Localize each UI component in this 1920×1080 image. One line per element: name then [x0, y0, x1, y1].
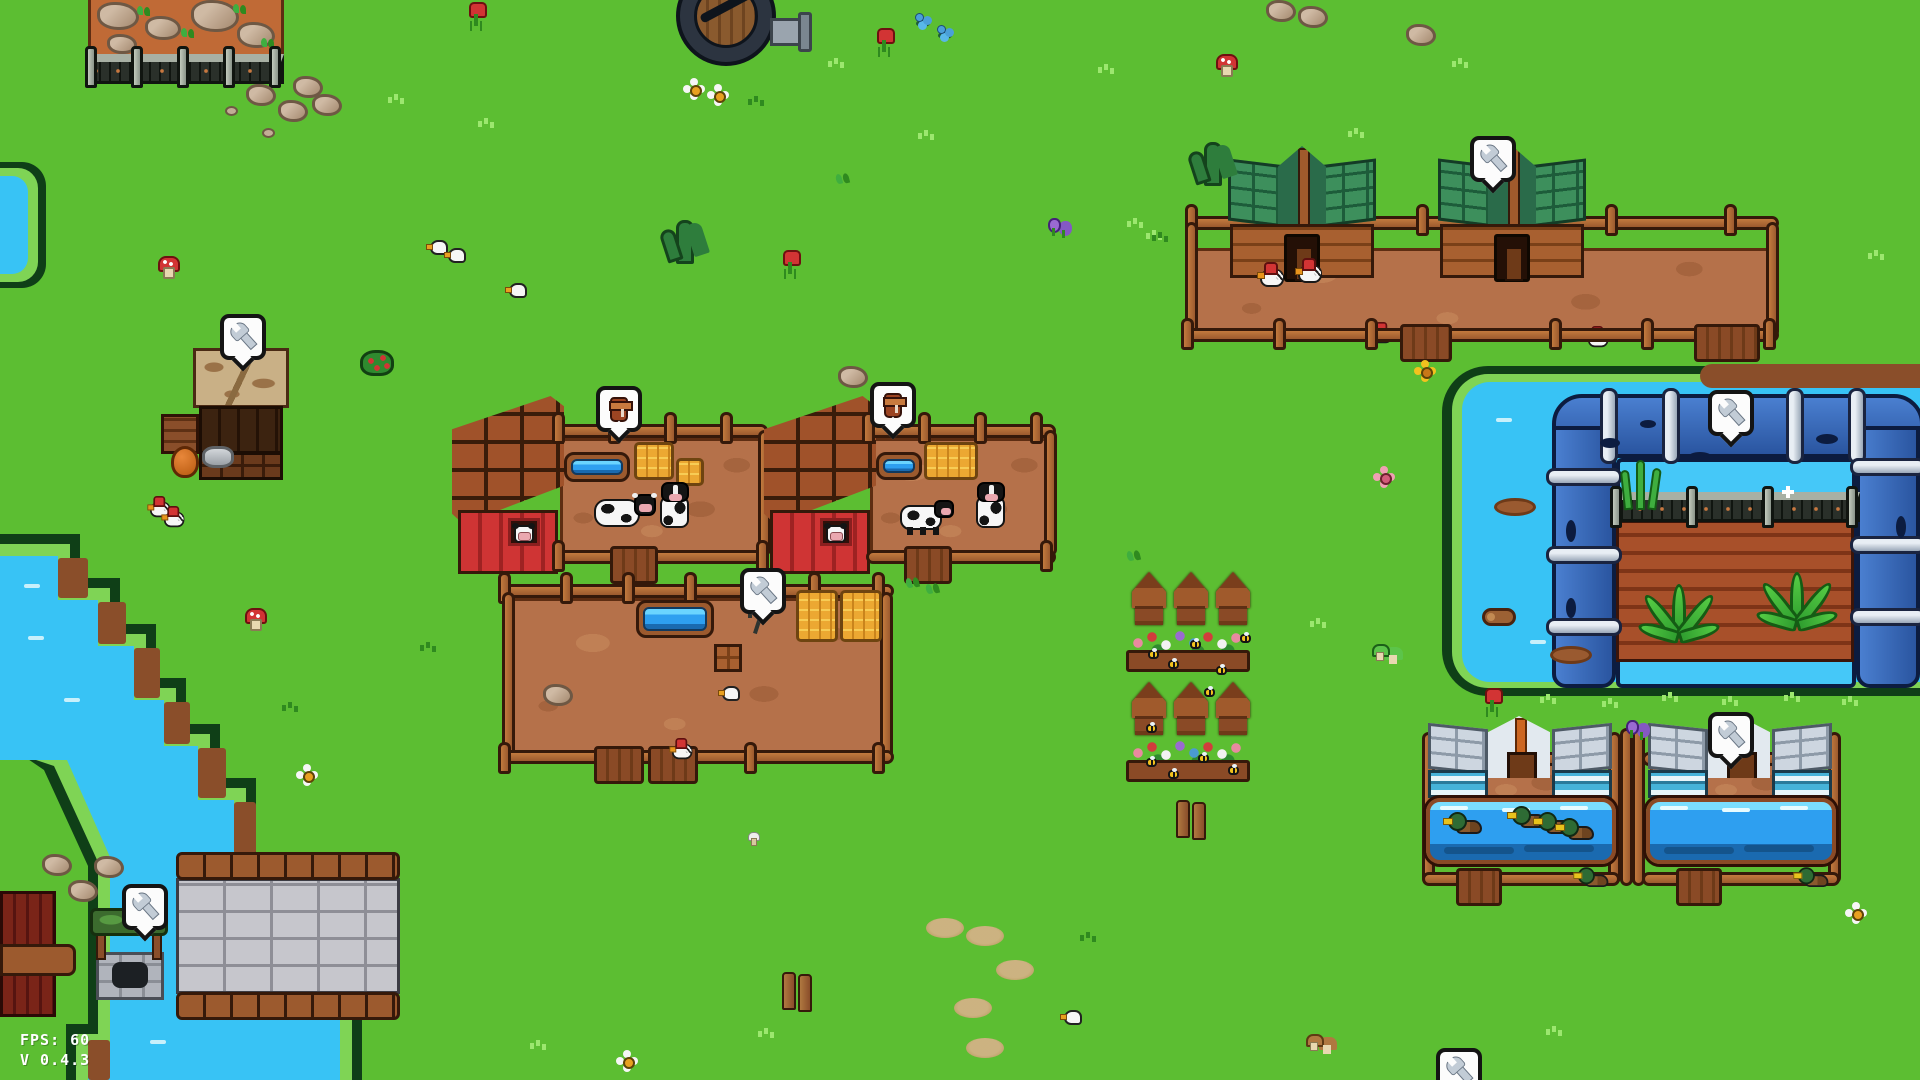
- pen-gate[interactable]: [1676, 868, 1722, 906]
- milk-can-icon: [610, 397, 628, 422]
- fence-post: [974, 412, 987, 444]
- fence-post: [1030, 412, 1043, 444]
- grass-tuft-icon: [1546, 1026, 1562, 1036]
- white-flower-icon: [684, 80, 704, 98]
- blue-flower-icon: [914, 12, 932, 28]
- fence-post: [744, 742, 757, 774]
- red-flower-icon: [876, 28, 892, 54]
- wrench-bubble[interactable]: [1708, 390, 1754, 436]
- grass-tuft-icon: [1868, 250, 1884, 260]
- stone-bridge[interactable]: [176, 878, 400, 994]
- sprout-icon: [261, 38, 267, 47]
- grass-tuft-icon: [1452, 58, 1468, 68]
- water-sparkle: [1496, 418, 1512, 422]
- bee-icon: [1204, 688, 1215, 697]
- rock-icon: [838, 366, 868, 388]
- pen-gate[interactable]: [1400, 324, 1452, 362]
- fence-post: [1763, 318, 1776, 350]
- red-mushroom-icon: [158, 256, 176, 276]
- bee-icon: [1168, 660, 1179, 669]
- fence-post: [872, 742, 885, 774]
- sprout-icon: [1127, 551, 1141, 564]
- pebble-icon: [262, 128, 275, 138]
- pipe-clamp: [1850, 536, 1920, 554]
- upgrade-wrench-icon: [1441, 1053, 1476, 1080]
- rock-icon: [94, 856, 124, 878]
- fence-post: [552, 540, 565, 572]
- cow-sprite: [900, 498, 952, 538]
- chicken-sprite: [1260, 262, 1286, 288]
- bee-icon: [1146, 724, 1157, 733]
- chicken-sprite: [1298, 258, 1324, 284]
- wrench-bubble[interactable]: [1708, 712, 1754, 758]
- cow-head-sprite: [826, 525, 846, 543]
- fence-post: [1181, 318, 1194, 350]
- rock-icon: [278, 100, 308, 122]
- wrench-bubble[interactable]: [122, 884, 168, 930]
- fence-post: [1686, 486, 1698, 528]
- rock-icon: [68, 880, 98, 902]
- wood-posts-icon: [782, 972, 810, 1010]
- hay-feeder[interactable]: [924, 442, 978, 480]
- water-sparkle: [64, 698, 80, 702]
- pipe-stain: [1816, 434, 1838, 444]
- water-sparkle: [24, 584, 40, 588]
- water-sparkle: [150, 1040, 166, 1044]
- chicken-sprite: [672, 738, 694, 760]
- grass-tuft-icon: [1602, 698, 1618, 708]
- upgrade-wrench-icon: [225, 319, 260, 354]
- grass-tuft-icon: [1540, 694, 1556, 704]
- barn-window: [820, 518, 852, 546]
- pink-flower-icon: [1374, 468, 1394, 486]
- duck-house-roof: [1552, 723, 1612, 775]
- grass-tuft-icon: [388, 94, 404, 104]
- coop-gable: [1278, 146, 1326, 232]
- pen-fence-side: [1632, 728, 1645, 886]
- duck-house-wall: [1428, 770, 1488, 798]
- grass-tuft-icon: [530, 1040, 546, 1050]
- pen-gate[interactable]: [1456, 868, 1502, 906]
- grass-tuft-icon: [1722, 696, 1738, 706]
- pebble-icon: [225, 106, 238, 116]
- white-flower-icon: [297, 766, 317, 784]
- green-mushroom-icon: [1372, 644, 1400, 662]
- pen-fence-side: [502, 592, 515, 760]
- dirt-patch-icon: [954, 998, 992, 1018]
- red-mushroom-icon: [245, 608, 263, 628]
- rock-icon: [1406, 24, 1436, 46]
- beehive[interactable]: [1132, 572, 1166, 628]
- pipe-stain: [1640, 420, 1656, 428]
- bank-dirt: [198, 748, 226, 798]
- purple-flower-icon: [1626, 718, 1648, 738]
- milk-bubble[interactable]: [870, 382, 916, 428]
- sparkle-icon: [1782, 486, 1794, 498]
- fence-post: [560, 572, 573, 604]
- bee-icon: [1148, 650, 1159, 659]
- rock-icon: [312, 94, 342, 116]
- white-mushroom-icon: [748, 832, 760, 845]
- grass-tuft-icon: [758, 1028, 774, 1038]
- bridge-rail-top: [176, 852, 400, 880]
- debug-hud: FPS: 60 V 0.4.3: [20, 1030, 90, 1070]
- water-trough[interactable]: [876, 452, 922, 480]
- upgrade-wrench-icon: [745, 573, 780, 608]
- pipe-stain: [1688, 452, 1712, 462]
- water-sparkle: [28, 636, 44, 640]
- rock-icon: [246, 84, 276, 106]
- wood-posts-icon: [1176, 800, 1204, 838]
- fence-post: [720, 412, 733, 444]
- grass-tuft-icon: [1127, 218, 1143, 228]
- pen-fence: [502, 750, 894, 764]
- wrench-bubble[interactable]: [740, 568, 786, 614]
- metal-bowl[interactable]: [202, 446, 234, 468]
- bird-icon: [444, 248, 462, 261]
- milk-can-icon: [884, 393, 902, 418]
- duck-sprite: [1560, 818, 1596, 842]
- grass-tuft-icon: [1662, 692, 1678, 702]
- pen-fence: [556, 424, 768, 438]
- duck-sprite: [1448, 812, 1484, 836]
- crop-plant: [1752, 536, 1842, 632]
- kelp-icon: [1620, 456, 1664, 510]
- upgrade-wrench-icon: [127, 889, 162, 924]
- fence-post: [1846, 486, 1858, 528]
- bird-icon: [1060, 1010, 1078, 1023]
- bank-dirt: [164, 702, 190, 744]
- bee-icon: [1190, 640, 1201, 649]
- fence-post: [1416, 204, 1429, 236]
- mud-patch-icon: [1494, 498, 1536, 516]
- barn-window: [508, 518, 540, 546]
- pipe-stain: [1600, 438, 1620, 448]
- pipe-clamp: [1786, 388, 1804, 464]
- pipe-stain: [1566, 520, 1576, 542]
- white-flower-icon: [1846, 904, 1866, 922]
- grass-tuft-icon: [1310, 618, 1326, 628]
- pipe-clamp: [1848, 388, 1866, 464]
- fence-post: [1724, 204, 1737, 236]
- bee-icon: [1198, 754, 1209, 763]
- red-flower-icon: [782, 250, 798, 276]
- duck-house-wall: [1772, 770, 1832, 798]
- cow-barn[interactable]: [764, 396, 876, 578]
- bank-dirt: [98, 602, 126, 644]
- pipe-stain: [1896, 516, 1906, 538]
- sprout-icon: [137, 6, 143, 15]
- composter-pipe-cap: [798, 12, 812, 52]
- cow-barn[interactable]: [452, 396, 564, 578]
- mud-patch-icon: [1550, 646, 1592, 664]
- water-sparkle: [1530, 640, 1546, 644]
- dirt-patch-icon: [926, 918, 964, 938]
- wrench-bubble[interactable]: [1470, 136, 1516, 182]
- grass-tuft-icon: [1784, 692, 1800, 702]
- pipe-clamp: [1850, 458, 1920, 476]
- sprout-icon: [906, 578, 920, 591]
- pen-fence: [556, 550, 768, 564]
- clay-pot[interactable]: [171, 446, 199, 478]
- rock-icon: [1266, 0, 1296, 22]
- grass-tuft-dark-icon: [1152, 232, 1168, 242]
- white-flower-icon: [617, 1052, 637, 1070]
- upgrade-wrench-icon: [1713, 395, 1748, 430]
- bird-icon: [505, 283, 523, 296]
- duck-sprite: [1798, 867, 1830, 889]
- grass-tuft-icon: [828, 58, 844, 68]
- pipe-clamp: [1546, 468, 1622, 486]
- pipe-clamp: [1546, 618, 1622, 636]
- tall-grass-icon: [1192, 142, 1228, 182]
- coop-roof-panel: [1318, 158, 1376, 227]
- fence-post: [1040, 540, 1053, 572]
- well-post: [96, 932, 106, 960]
- beehive[interactable]: [1216, 682, 1250, 738]
- rock-icon: [543, 684, 573, 706]
- duck-house-roof: [1772, 723, 1832, 775]
- fence-post: [1605, 204, 1618, 236]
- coop-roof-panel: [1228, 158, 1286, 227]
- grass-tuft-icon: [1842, 696, 1858, 706]
- duck-house-roof: [1648, 723, 1708, 775]
- fence-post: [1762, 486, 1774, 528]
- sprout-icon: [181, 28, 187, 37]
- log-icon: [1482, 608, 1516, 626]
- fence-post: [223, 46, 235, 88]
- grass-tuft-dark-icon: [1080, 932, 1096, 942]
- hay-bale: [840, 590, 882, 642]
- blue-flower-icon: [936, 24, 954, 40]
- barn-roof: [764, 396, 876, 524]
- grass-tuft-icon: [1348, 128, 1364, 138]
- wrench-bubble[interactable]: [220, 314, 266, 360]
- upgrade-wrench-icon: [1713, 717, 1748, 752]
- pen-gate[interactable]: [594, 746, 644, 784]
- berry-bush-icon: [360, 350, 394, 376]
- quarry-rock: [237, 22, 275, 48]
- cow-sprite: [594, 494, 656, 530]
- fence-post: [269, 46, 281, 88]
- fence-post: [552, 412, 565, 444]
- fence-post: [1641, 318, 1654, 350]
- hay-bale: [796, 590, 838, 642]
- beehive[interactable]: [1174, 572, 1208, 628]
- quarry-rock: [145, 16, 181, 40]
- bird-icon: [426, 240, 444, 253]
- pipe-clamp: [1600, 388, 1618, 464]
- purple-flower-icon: [1048, 216, 1070, 236]
- hay-feeder[interactable]: [634, 442, 674, 480]
- game-viewport: FPS: 60 V 0.4.3: [0, 0, 1920, 1080]
- bird-icon: [718, 686, 736, 699]
- pond-dirt-edge: [1700, 364, 1920, 388]
- coop-door: [1494, 234, 1530, 282]
- fence-post: [664, 412, 677, 444]
- red-flower-icon: [468, 2, 484, 28]
- crop-plant: [1634, 548, 1724, 644]
- duck-house-wall: [1648, 770, 1708, 798]
- red-flower-icon: [1484, 688, 1500, 714]
- white-flower-icon: [708, 86, 728, 104]
- bee-icon: [1240, 634, 1251, 643]
- milk-bubble[interactable]: [596, 386, 642, 432]
- pipe-stain: [1566, 598, 1576, 618]
- dirt-patch-icon: [966, 1038, 1004, 1058]
- bee-icon: [1146, 758, 1157, 767]
- fence-post: [1549, 318, 1562, 350]
- tall-grass-icon: [664, 220, 700, 260]
- rock-icon: [1298, 6, 1328, 28]
- grass-tuft-icon: [1098, 64, 1114, 74]
- bank-dirt: [58, 558, 88, 598]
- sprout-icon: [926, 584, 940, 597]
- fence-post: [1273, 318, 1286, 350]
- grass-tuft-dark-icon: [282, 702, 298, 712]
- pipe-clamp: [1662, 388, 1680, 464]
- grass-tuft-icon: [918, 130, 934, 140]
- flower-planter[interactable]: [1126, 630, 1246, 672]
- bee-icon: [1228, 766, 1239, 775]
- cow-sprite: [658, 482, 692, 532]
- water-trough[interactable]: [636, 600, 714, 638]
- duck-pool[interactable]: [1646, 798, 1836, 864]
- coop-roof-panel: [1528, 158, 1586, 227]
- cow-head-sprite: [514, 525, 534, 543]
- bank-dirt: [134, 648, 160, 698]
- wrench-bubble[interactable]: [1436, 1048, 1482, 1080]
- grass-tuft-dark-icon: [420, 642, 436, 652]
- fence-post: [85, 46, 97, 88]
- feed-crate[interactable]: [714, 644, 742, 672]
- bank-dirt: [88, 1040, 110, 1080]
- duck-house-wall: [1552, 770, 1612, 798]
- duck-house-roof: [1428, 723, 1488, 775]
- bank-dirt: [234, 802, 256, 854]
- dirt-patch-icon: [966, 926, 1004, 946]
- pen-fence: [866, 550, 1056, 564]
- fence-post: [622, 572, 635, 604]
- upgrade-wrench-icon: [1475, 141, 1510, 176]
- red-mushroom-icon: [1216, 54, 1234, 74]
- sprout-icon: [233, 4, 239, 13]
- well-hole: [112, 962, 148, 988]
- fps-counter: FPS: 60: [20, 1030, 90, 1050]
- beehive[interactable]: [1216, 572, 1250, 628]
- quarry-rock: [191, 0, 239, 32]
- dirt-patch-icon: [996, 960, 1034, 980]
- well-post: [152, 932, 162, 960]
- pipe-clamp: [1546, 546, 1622, 564]
- quarry-rock: [97, 2, 139, 30]
- duck-sprite: [1578, 867, 1610, 889]
- version-label: V 0.4.3: [20, 1050, 90, 1070]
- cow-sprite: [974, 482, 1008, 532]
- fence-post: [131, 46, 143, 88]
- flower-planter[interactable]: [1126, 740, 1246, 782]
- water-trough[interactable]: [564, 452, 630, 482]
- bee-icon: [1168, 770, 1179, 779]
- brown-mushroom-icon: [1306, 1034, 1334, 1052]
- fence-post: [1365, 318, 1378, 350]
- duck-house-gable[interactable]: [1488, 716, 1550, 778]
- fence-post: [498, 742, 511, 774]
- pipe-clamp: [1850, 608, 1920, 626]
- fence-post: [177, 46, 189, 88]
- lumber-beam: [0, 944, 76, 976]
- grass-tuft-icon: [478, 118, 494, 128]
- inlet-water: [0, 176, 28, 274]
- bee-icon: [1216, 666, 1227, 675]
- yellow-flower-icon: [1415, 362, 1435, 380]
- sprout-icon: [836, 174, 850, 187]
- bridge-rail-bottom: [176, 992, 400, 1020]
- chicken-sprite: [164, 506, 186, 528]
- pen-fence-side: [1044, 430, 1057, 556]
- barn-roof: [452, 396, 564, 524]
- beehive[interactable]: [1174, 682, 1208, 738]
- grass-tuft-dark-icon: [748, 96, 764, 106]
- pen-gate[interactable]: [1694, 324, 1760, 362]
- fence-post: [918, 412, 931, 444]
- rock-icon: [42, 854, 72, 876]
